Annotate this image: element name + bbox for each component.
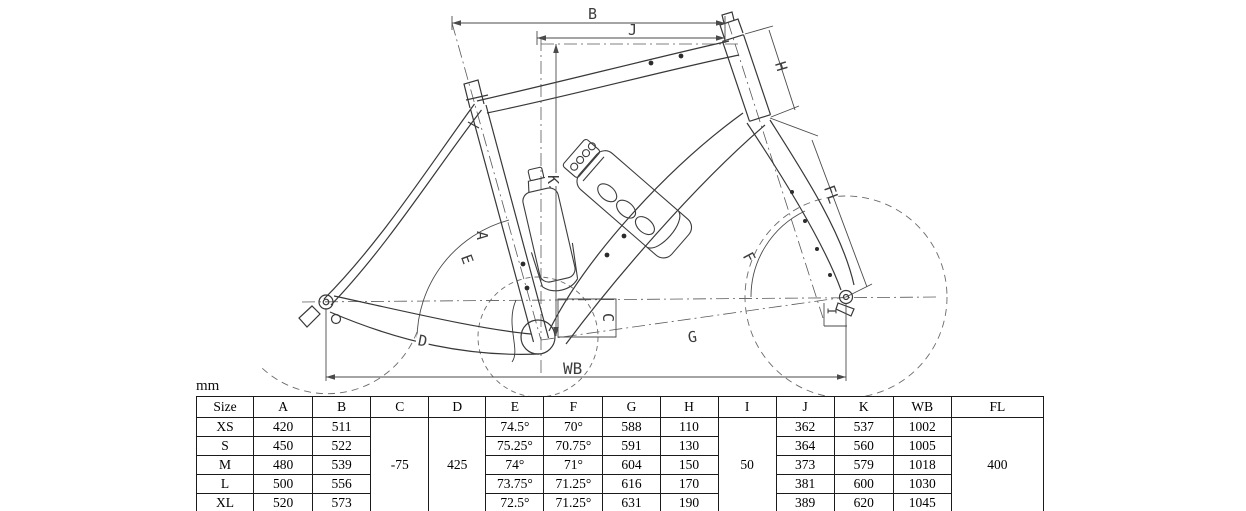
page: B J K H FL E F A C D G WB I mm Size A B …: [0, 0, 1246, 511]
table-row: XS 420 511 -75 425 74.5° 70° 588 110 50 …: [197, 418, 1044, 437]
col-header-f: F: [544, 397, 603, 418]
dim-label-wb: WB: [563, 361, 582, 377]
table-row: XL 520 573 72.5° 71.25° 631 190 389 620 …: [197, 494, 1044, 511]
table-cell: 72.5°: [486, 494, 544, 511]
table-cell: 1030: [893, 475, 951, 494]
dim-label-g: G: [685, 329, 700, 346]
table-cell: 520: [254, 494, 313, 511]
col-header-d: D: [429, 397, 486, 418]
col-header-a: A: [254, 397, 313, 418]
table-cell: 71.25°: [544, 475, 603, 494]
size-cell: S: [197, 437, 254, 456]
table-cell: 579: [834, 456, 893, 475]
size-cell: XL: [197, 494, 254, 511]
table-cell: 604: [603, 456, 660, 475]
table-cell: 381: [776, 475, 834, 494]
dimension-lines: [326, 16, 872, 381]
col-header-c: C: [371, 397, 429, 418]
col-header-size: Size: [197, 397, 254, 418]
col-header-b: B: [313, 397, 371, 418]
size-cell: L: [197, 475, 254, 494]
table-cell: 511: [313, 418, 371, 437]
table-cell: 130: [660, 437, 718, 456]
table-row: S 450 522 75.25° 70.75° 591 130 364 560 …: [197, 437, 1044, 456]
dim-label-i: I: [826, 307, 838, 314]
table-cell: 588: [603, 418, 660, 437]
down-tube-bottle: [558, 134, 696, 263]
table-cell: 74.5°: [486, 418, 544, 437]
merged-cell-i: 50: [718, 418, 776, 511]
col-header-h: H: [660, 397, 718, 418]
merged-cell-d: 425: [429, 418, 486, 511]
col-header-k: K: [834, 397, 893, 418]
col-header-fl: FL: [951, 397, 1043, 418]
table-header-row: Size A B C D E F G H I J K WB FL: [197, 397, 1044, 418]
table-row: M 480 539 74° 71° 604 150 373 579 1018: [197, 456, 1044, 475]
table-row: L 500 556 73.75° 71.25° 616 170 381 600 …: [197, 475, 1044, 494]
size-cell: M: [197, 456, 254, 475]
dim-label-b: B: [588, 7, 597, 22]
table-cell: 70°: [544, 418, 603, 437]
col-header-i: I: [718, 397, 776, 418]
merged-cell-c: -75: [371, 418, 429, 511]
bike-frame-drawing: [0, 0, 1246, 396]
table-cell: 556: [313, 475, 371, 494]
col-header-g: G: [603, 397, 660, 418]
table-cell: 616: [603, 475, 660, 494]
table-cell: 573: [313, 494, 371, 511]
table-cell: 500: [254, 475, 313, 494]
table-cell: 1045: [893, 494, 951, 511]
dim-label-j: J: [628, 23, 637, 38]
table-cell: 450: [254, 437, 313, 456]
dim-label-c: C: [600, 311, 615, 324]
table-cell: 170: [660, 475, 718, 494]
col-header-j: J: [776, 397, 834, 418]
dimension-arrows: [326, 20, 846, 380]
table-cell: 110: [660, 418, 718, 437]
table-cell: 362: [776, 418, 834, 437]
table-cell: 1018: [893, 456, 951, 475]
table-cell: 600: [834, 475, 893, 494]
dim-label-a: A: [474, 231, 489, 240]
size-cell: XS: [197, 418, 254, 437]
table-cell: 150: [660, 456, 718, 475]
frame-geometry-diagram: B J K H FL E F A C D G WB I: [0, 0, 1246, 396]
table-cell: 420: [254, 418, 313, 437]
fork-bolts: [521, 54, 832, 291]
merged-cell-fl: 400: [951, 418, 1043, 511]
table-cell: 631: [603, 494, 660, 511]
table-cell: 591: [603, 437, 660, 456]
table-cell: 480: [254, 456, 313, 475]
table-cell: 373: [776, 456, 834, 475]
table-cell: 70.75°: [544, 437, 603, 456]
table-cell: 190: [660, 494, 718, 511]
table-cell: 522: [313, 437, 371, 456]
table-cell: 74°: [486, 456, 544, 475]
geometry-table: Size A B C D E F G H I J K WB FL XS 420 …: [196, 396, 1044, 511]
col-header-e: E: [486, 397, 544, 418]
table-cell: 620: [834, 494, 893, 511]
table-cell: 73.75°: [486, 475, 544, 494]
table-cell: 1005: [893, 437, 951, 456]
table-cell: 539: [313, 456, 371, 475]
table-cell: 560: [834, 437, 893, 456]
table-cell: 71.25°: [544, 494, 603, 511]
table-cell: 389: [776, 494, 834, 511]
dim-label-k: K: [545, 173, 560, 186]
table-cell: 71°: [544, 456, 603, 475]
unit-label: mm: [196, 378, 219, 395]
table-cell: 537: [834, 418, 893, 437]
table-cell: 75.25°: [486, 437, 544, 456]
table-cell: 364: [776, 437, 834, 456]
table-cell: 1002: [893, 418, 951, 437]
col-header-wb: WB: [893, 397, 951, 418]
